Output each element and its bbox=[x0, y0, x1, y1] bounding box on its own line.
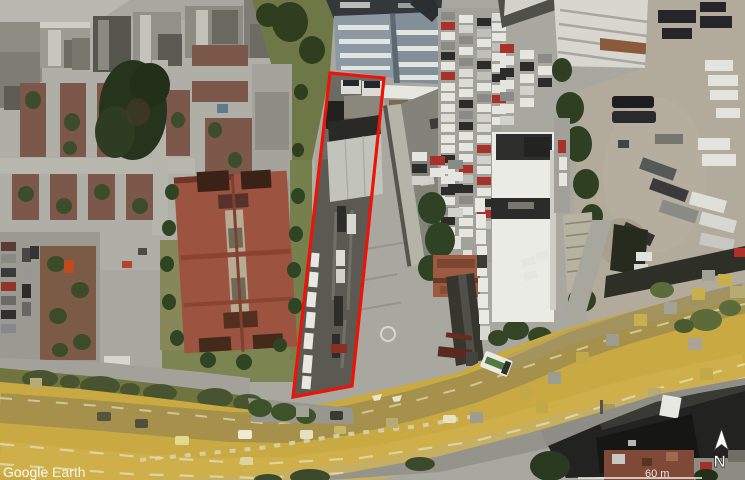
svg-text:60 m: 60 m bbox=[645, 468, 669, 480]
svg-text:Google Earth: Google Earth bbox=[3, 464, 86, 480]
svg-text:N: N bbox=[714, 452, 726, 471]
